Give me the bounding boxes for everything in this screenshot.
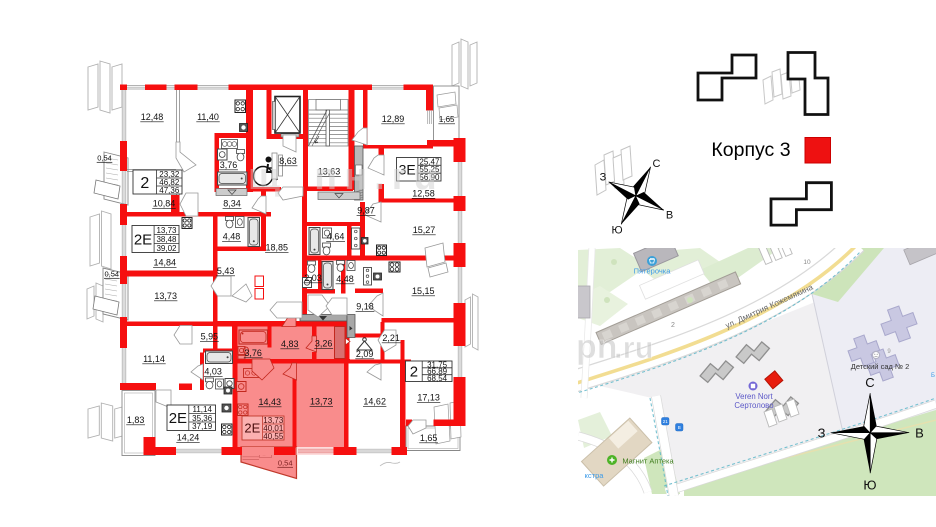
svg-text:14,62: 14,62	[363, 397, 386, 407]
svg-text:11,14: 11,14	[143, 354, 165, 364]
svg-text:2: 2	[671, 322, 675, 329]
svg-text:37,19: 37,19	[192, 422, 213, 431]
svg-text:1,65: 1,65	[420, 433, 438, 443]
svg-text:Ю: Ю	[611, 225, 622, 237]
svg-text:Магнит Аптека: Магнит Аптека	[622, 457, 674, 466]
svg-text:21: 21	[663, 419, 669, 424]
svg-text:15,27: 15,27	[413, 225, 436, 235]
svg-text:14,84: 14,84	[154, 258, 177, 268]
svg-text:9,87: 9,87	[357, 206, 375, 216]
svg-text:В: В	[915, 426, 924, 441]
svg-text:0,54: 0,54	[104, 270, 119, 279]
svg-text:8,63: 8,63	[279, 156, 297, 166]
svg-text:10: 10	[803, 259, 811, 266]
svg-text:С: С	[653, 158, 661, 170]
svg-text:39,02: 39,02	[156, 244, 177, 253]
svg-text:13,73: 13,73	[156, 226, 177, 235]
svg-text:0,54: 0,54	[97, 154, 112, 163]
svg-text:пн.ru: пн.ru	[314, 156, 443, 198]
svg-text:З: З	[818, 426, 826, 441]
svg-text:5,95: 5,95	[201, 332, 219, 342]
svg-text:15,15: 15,15	[412, 286, 435, 296]
svg-text:3,26: 3,26	[315, 339, 333, 349]
svg-text:Б: Б	[931, 373, 935, 379]
svg-text:С: С	[865, 375, 874, 390]
svg-text:Детский сад № 2: Детский сад № 2	[851, 362, 910, 371]
svg-text:кстра: кстра	[585, 471, 605, 480]
svg-text:Сертолово: Сертолово	[734, 401, 774, 410]
svg-text:3,76: 3,76	[220, 160, 238, 170]
svg-text:4,48: 4,48	[223, 232, 241, 242]
svg-text:47,36: 47,36	[159, 186, 180, 195]
svg-text:щ: щ	[248, 156, 280, 198]
svg-text:2Е: 2Е	[169, 410, 187, 427]
svg-text:1,65: 1,65	[439, 115, 455, 124]
svg-text:68,54: 68,54	[427, 374, 448, 383]
svg-text:3,76: 3,76	[244, 348, 262, 358]
svg-text:Ю: Ю	[863, 478, 876, 493]
svg-text:4,48: 4,48	[336, 274, 354, 284]
svg-text:12,48: 12,48	[141, 112, 164, 122]
svg-text:2: 2	[410, 364, 418, 381]
svg-text:2Е: 2Е	[134, 231, 152, 248]
svg-text:Veren Nort: Veren Nort	[735, 392, 773, 401]
svg-text:13,73: 13,73	[310, 397, 333, 407]
svg-text:2: 2	[140, 175, 149, 192]
svg-text:1,83: 1,83	[127, 415, 145, 425]
svg-text:З: З	[600, 172, 607, 184]
svg-text:13,73: 13,73	[154, 291, 177, 301]
svg-text:11,40: 11,40	[197, 112, 219, 122]
svg-text:10,84: 10,84	[153, 199, 176, 209]
svg-text:14,24: 14,24	[177, 433, 200, 443]
svg-text:17,13: 17,13	[417, 393, 440, 403]
svg-text:.ru: .ru	[614, 330, 654, 365]
svg-text:pn: pn	[576, 328, 618, 366]
svg-text:18,85: 18,85	[266, 243, 289, 253]
svg-text:2,09: 2,09	[356, 349, 374, 359]
svg-text:5,43: 5,43	[217, 266, 235, 276]
svg-text:9,18: 9,18	[356, 302, 374, 312]
svg-text:2,03: 2,03	[304, 273, 322, 283]
svg-text:8,34: 8,34	[223, 199, 241, 209]
svg-text:14,43: 14,43	[259, 397, 282, 407]
svg-text:4,03: 4,03	[204, 367, 222, 377]
svg-text:40,55: 40,55	[263, 432, 284, 441]
svg-text:В: В	[666, 210, 673, 222]
svg-text:2Е: 2Е	[244, 421, 260, 436]
svg-text:38,48: 38,48	[156, 235, 177, 244]
svg-text:4,83: 4,83	[281, 339, 299, 349]
svg-text:12,89: 12,89	[382, 114, 405, 124]
svg-text:4,64: 4,64	[327, 232, 345, 242]
svg-text:В: В	[678, 425, 681, 430]
svg-text:0,54: 0,54	[278, 459, 293, 468]
svg-text:Корпус 3: Корпус 3	[711, 139, 790, 161]
svg-text:2,21: 2,21	[382, 333, 400, 343]
svg-text:Пятёрочка: Пятёрочка	[634, 267, 672, 276]
